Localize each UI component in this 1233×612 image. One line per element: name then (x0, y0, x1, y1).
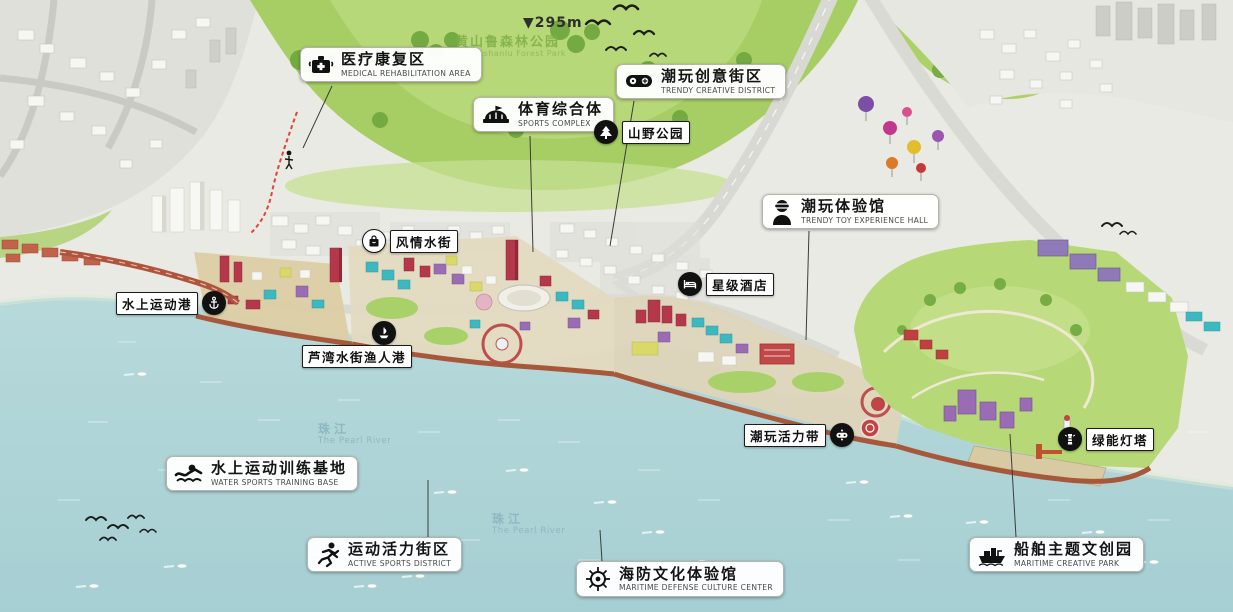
game-controller-icon (624, 70, 654, 92)
callout-medical-rehab: 医疗康复区 MEDICAL REHABILITATION AREA (300, 47, 482, 82)
callout-zh: 运动活力街区 (348, 541, 451, 558)
tag-label: 水上运动港 (116, 292, 198, 315)
tag-label: 芦湾水街渔人港 (302, 345, 412, 368)
river-label-1: 珠江 The Pearl River (318, 422, 391, 447)
tag-label: 山野公园 (622, 121, 690, 144)
river-name-zh: 珠江 (492, 512, 565, 526)
river-name-en: The Pearl River (492, 526, 565, 536)
callout-maritime-creative: 船舶主题文创园 MARITIME CREATIVE PARK (969, 537, 1144, 572)
callout-zh: 体育综合体 (518, 101, 603, 118)
callout-en: ACTIVE SPORTS DISTRICT (348, 559, 451, 568)
callout-trendy-creative: 潮玩创意街区 TRENDY CREATIVE DISTRICT (616, 64, 786, 99)
callout-en: SPORTS COMPLEX (518, 119, 603, 128)
callout-maritime-defense: 海防文化体验馆 MARITIME DEFENSE CULTURE CENTER (576, 561, 784, 597)
vr-headset-icon (770, 198, 794, 225)
boat-icon (372, 321, 396, 345)
callout-en: WATER SPORTS TRAINING BASE (211, 478, 347, 487)
callout-en: MARITIME CREATIVE PARK (1014, 559, 1133, 568)
tag-vitality-belt: 潮玩活力带 (744, 423, 854, 447)
runner-icon (315, 541, 341, 568)
medical-kit-icon (308, 52, 334, 76)
callout-zh: 船舶主题文创园 (1014, 541, 1133, 558)
stadium-icon (481, 102, 511, 127)
tag-green-lighthouse: 绿能灯塔 (1058, 427, 1154, 451)
lighthouse-icon (1058, 427, 1082, 451)
tag-label: 潮玩活力带 (744, 424, 826, 447)
callout-trendy-toy: 潮玩体验馆 TRENDY TOY EXPERIENCE HALL (762, 194, 939, 229)
masterplan-map: ▼295m 黄山鲁森林公园 Huangshanlu Forest Park 医疗… (0, 0, 1233, 612)
tag-water-sports-port: 水上运动港 (116, 291, 226, 315)
ship-helm-icon (584, 565, 612, 593)
callout-sports-complex: 体育综合体 SPORTS COMPLEX (473, 97, 614, 132)
callout-en: TRENDY TOY EXPERIENCE HALL (801, 216, 928, 225)
tag-mountain-park: 山野公园 (594, 120, 690, 144)
tag-label: 绿能灯塔 (1086, 428, 1154, 451)
tree-icon (594, 120, 618, 144)
callout-zh: 海防文化体验馆 (619, 566, 773, 583)
swimmer-icon (174, 462, 204, 485)
ship-icon (977, 542, 1007, 567)
bed-icon (678, 272, 702, 296)
anchor-icon (202, 291, 226, 315)
tag-label: 星级酒店 (706, 273, 774, 296)
tag-water-street: 风情水街 (362, 229, 458, 253)
tag-fisherman-port: 芦湾水街渔人港 (302, 345, 412, 368)
joystick-icon (830, 423, 854, 447)
callout-en: MEDICAL REHABILITATION AREA (341, 69, 471, 78)
river-name-zh: 珠江 (318, 422, 391, 436)
callout-en: MARITIME DEFENSE CULTURE CENTER (619, 583, 773, 592)
tag-label: 风情水街 (390, 230, 458, 253)
river-name-en: The Pearl River (318, 436, 391, 446)
peak-elevation-label: ▼295m (523, 15, 583, 31)
callout-en: TRENDY CREATIVE DISTRICT (661, 86, 775, 95)
callout-zh: 水上运动训练基地 (211, 460, 347, 477)
callout-active-sports: 运动活力街区 ACTIVE SPORTS DISTRICT (307, 537, 462, 572)
tag-star-hotel: 星级酒店 (678, 272, 774, 296)
callout-zh: 潮玩创意街区 (661, 68, 775, 85)
callout-zh: 医疗康复区 (341, 51, 471, 68)
callout-zh: 潮玩体验馆 (801, 198, 928, 215)
shopping-bag-icon (362, 229, 386, 253)
callout-water-training: 水上运动训练基地 WATER SPORTS TRAINING BASE (166, 456, 358, 491)
river-label-2: 珠江 The Pearl River (492, 512, 565, 537)
